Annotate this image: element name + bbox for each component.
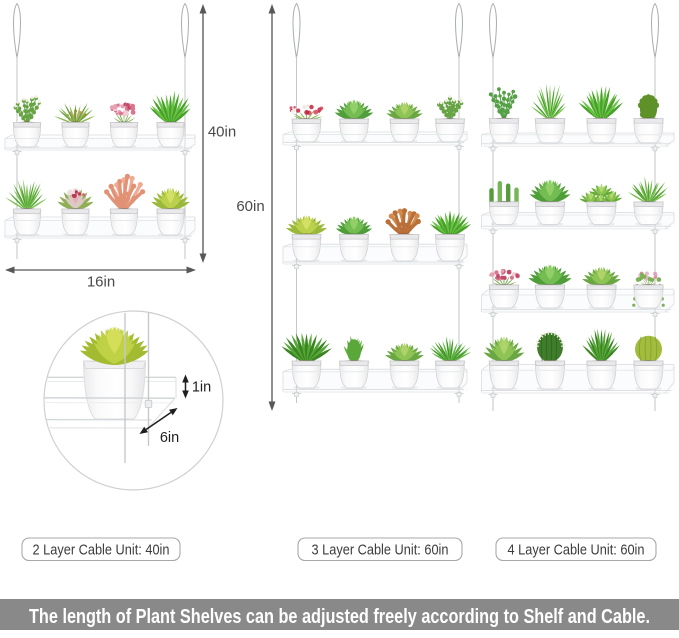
svg-text:The length of Plant Shelves ca: The length of Plant Shelves can be adjus… [29, 605, 650, 628]
svg-text:40in: 40in [208, 124, 236, 141]
svg-text:6in: 6in [160, 430, 179, 446]
svg-text:3 Layer Cable Unit: 60in: 3 Layer Cable Unit: 60in [312, 541, 449, 558]
svg-text:2 Layer Cable Unit: 40in: 2 Layer Cable Unit: 40in [33, 541, 170, 558]
svg-text:60in: 60in [236, 198, 264, 215]
svg-text:4 Layer Cable Unit: 60in: 4 Layer Cable Unit: 60in [508, 541, 645, 558]
svg-text:1in: 1in [192, 380, 211, 396]
svg-text:16in: 16in [87, 274, 115, 291]
